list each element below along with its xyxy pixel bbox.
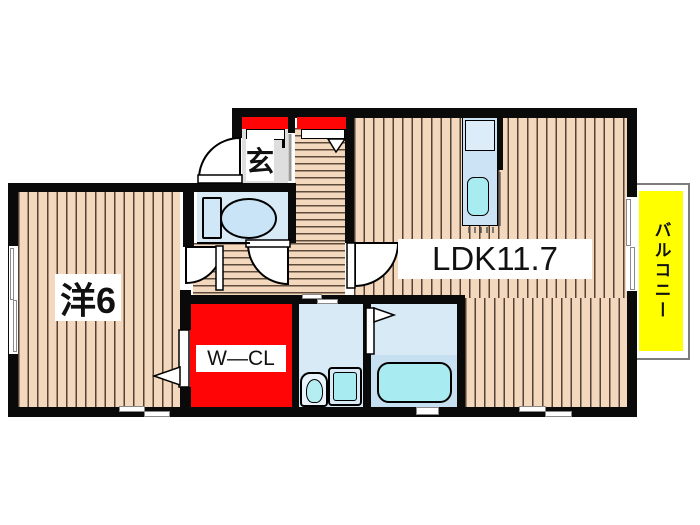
ldk-door-leaf bbox=[347, 243, 355, 288]
floor-plan: バルコニー bbox=[0, 0, 700, 525]
western-room-label-text: 洋6 bbox=[60, 272, 116, 324]
entrance-label-text: 玄 bbox=[246, 140, 274, 180]
toilet-door-leaf bbox=[246, 240, 290, 247]
hall-cabinet-arrow bbox=[328, 139, 345, 152]
bathroom-door-panel bbox=[366, 308, 374, 354]
walk-in-closet-label-text: W—CL bbox=[207, 347, 275, 371]
western-room-door-leaf bbox=[216, 246, 223, 290]
toilet-door-swing bbox=[248, 244, 288, 284]
kitchen-edge-ticks bbox=[469, 227, 493, 233]
walk-in-closet-label: W—CL bbox=[196, 345, 286, 372]
bathroom-door-flag bbox=[374, 308, 394, 322]
western-room-label: 洋6 bbox=[55, 274, 121, 321]
door-symbols bbox=[0, 0, 700, 525]
entrance-door-swing bbox=[199, 138, 240, 179]
ldk-label-text: LDK11.7 bbox=[432, 240, 558, 278]
entrance-door-leaf bbox=[198, 175, 242, 183]
ldk-label: LDK11.7 bbox=[398, 239, 592, 279]
ldk-door-swing bbox=[355, 243, 398, 286]
closet-door-flag bbox=[154, 367, 180, 385]
entrance-label: 玄 bbox=[246, 139, 274, 181]
